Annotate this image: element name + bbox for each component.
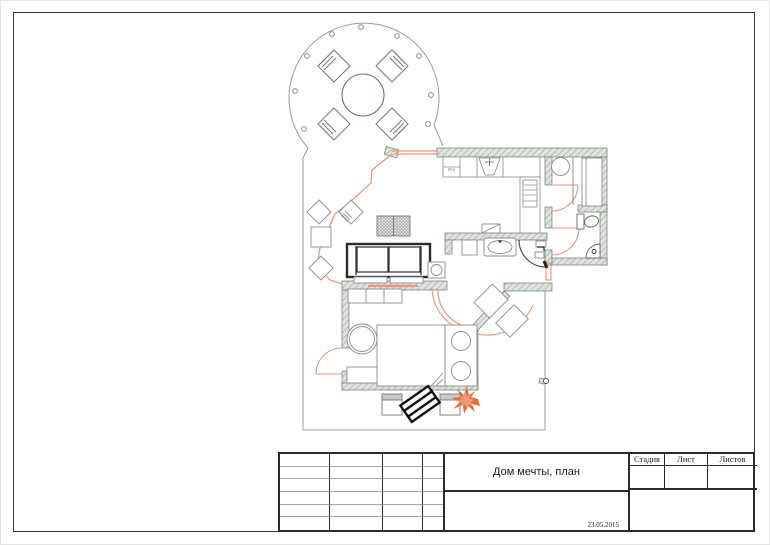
- terrace-boundary: [289, 23, 439, 148]
- living-room: [307, 200, 445, 286]
- bed-pillow-bottom: [452, 362, 471, 381]
- sheet-value-cell: [665, 466, 708, 488]
- door-wc: [552, 228, 579, 255]
- hall: [474, 284, 528, 337]
- wc-room: [577, 214, 600, 258]
- stamp-date: 23.05.2015: [588, 521, 620, 529]
- sofa-skirt-left: [354, 277, 387, 283]
- terrace-chair-sw: [318, 108, 350, 140]
- wall-hall-bottom: [504, 283, 552, 291]
- wall-top: [437, 148, 607, 157]
- sofa-skirt-right: [390, 277, 423, 283]
- round-side-table: [347, 324, 377, 354]
- wall-shelf: [482, 224, 500, 233]
- deck-stool-1: [382, 394, 402, 415]
- coffee-table: [377, 216, 410, 236]
- boiler: [552, 158, 570, 176]
- window-band-top: [392, 151, 437, 154]
- sofa: [347, 244, 430, 277]
- toilet-bowl: [583, 214, 599, 228]
- sheet-header-cell: Лист: [665, 454, 708, 465]
- square-table: [311, 227, 331, 247]
- bath-faucet: [537, 247, 544, 251]
- wardrobe: [582, 158, 602, 206]
- bed-mattress: [377, 325, 445, 386]
- deck-stool-2: [440, 394, 460, 415]
- boundary-marker: [544, 379, 549, 384]
- wall-top-stub: [384, 147, 399, 158]
- stage-header-cell: Стадия: [630, 454, 665, 465]
- bed-pillow-top: [452, 332, 471, 351]
- title-block-lower-cell: 23.05.2015: [445, 492, 628, 532]
- stove-label: Очг: [448, 167, 456, 172]
- toilet-tank: [577, 214, 584, 229]
- dresser-row: [348, 289, 402, 303]
- wall-bathroom-left: [445, 240, 452, 254]
- door-utility-room: [552, 185, 578, 211]
- hall-cabinet-1: [474, 284, 508, 318]
- kitchen: Очг: [443, 157, 540, 233]
- bath-fixture-a: [536, 241, 546, 247]
- corner-sink-drain: [592, 250, 596, 254]
- bedroom-bench: [347, 367, 377, 383]
- wall-kitchen-divider-b: [545, 207, 552, 228]
- wall-kitchen-divider-a: [545, 157, 552, 185]
- bath-sink-tap: [499, 240, 502, 243]
- armchair-3: [309, 256, 333, 280]
- armchair-2: [339, 200, 363, 224]
- terrace-chair-nw: [318, 50, 350, 82]
- round-dining-table: [342, 74, 384, 116]
- stage-value-cell: [630, 466, 665, 488]
- project-title: Дом мечты, план: [445, 454, 628, 492]
- drawing-sheet: Очг: [0, 0, 770, 545]
- terrace-chair-ne: [376, 50, 408, 82]
- fridge: [523, 180, 537, 207]
- terrace-edge-left: [303, 148, 308, 430]
- door-bedroom: [316, 348, 342, 374]
- terrace-chair-se: [376, 108, 408, 140]
- title-block-center: Дом мечты, план 23.05.2015: [445, 454, 630, 530]
- title-block-grid: [280, 454, 445, 530]
- title-block: Дом мечты, план 23.05.2015 Стадия Лист Л…: [278, 452, 755, 532]
- bath-fixture-b: [535, 252, 544, 258]
- armchair-1: [307, 200, 331, 224]
- wall-bottom-right-wing: [545, 258, 607, 265]
- bedroom: [347, 289, 477, 386]
- sheets-value-cell: [708, 466, 757, 488]
- title-block-right: Стадия Лист Листов: [630, 454, 757, 530]
- deck-furniture: [382, 386, 480, 422]
- utility-room: [552, 157, 603, 206]
- terrace-edge-right: [434, 125, 443, 146]
- hall-cabinet-2: [496, 305, 529, 338]
- organization-cell: [630, 490, 757, 530]
- sheets-header-cell: Листов: [708, 454, 757, 465]
- striped-bench: [400, 386, 439, 422]
- door-hall-arc-b: [438, 290, 474, 328]
- washing-machine: [462, 240, 477, 255]
